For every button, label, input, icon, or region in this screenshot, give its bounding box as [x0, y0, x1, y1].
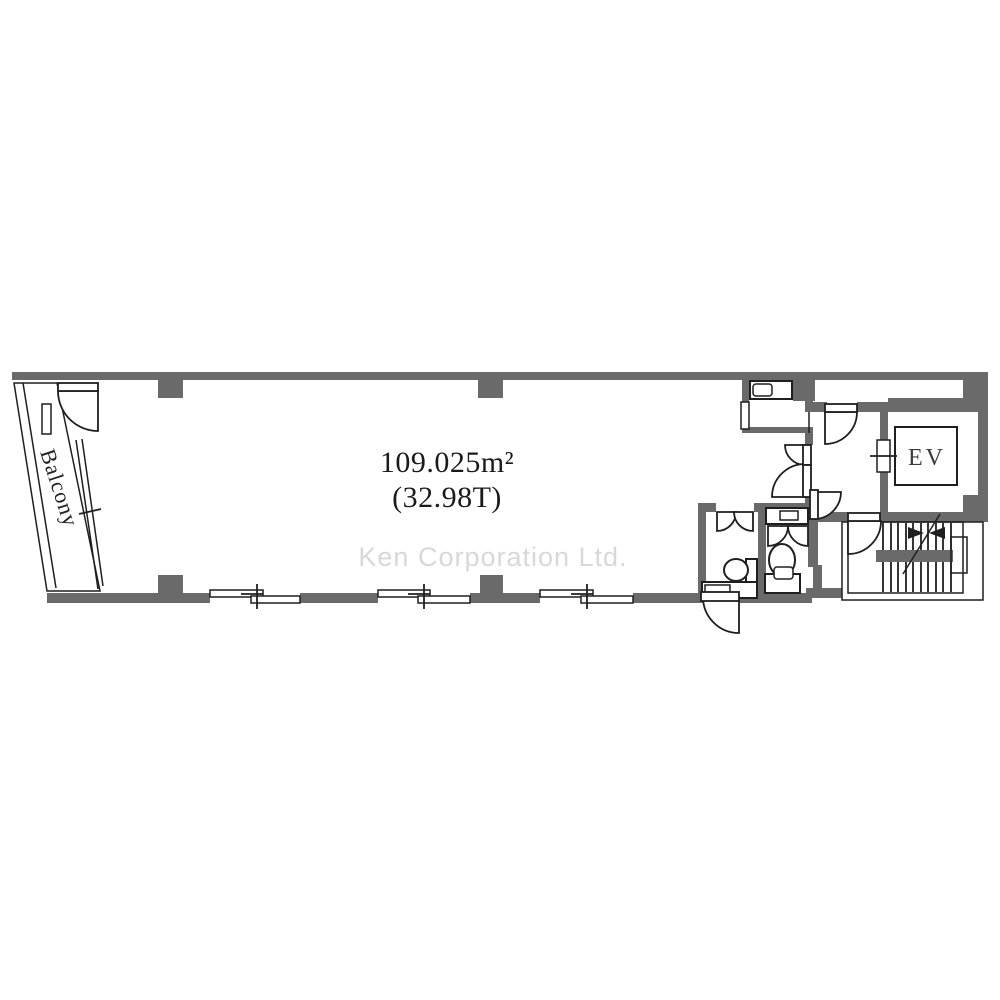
- balcony-pilaster: [42, 404, 51, 434]
- exit-door-panel: [701, 592, 739, 601]
- pillar-bottom-1: [158, 575, 183, 593]
- labels: 109.025m² (32.98T) Ken Corporation Ltd.: [358, 446, 627, 572]
- entry-door-leaf-upper: [803, 445, 811, 465]
- entry-door-swing-lower: [772, 464, 805, 497]
- stair-door-panel: [848, 513, 880, 521]
- top-wall: [12, 372, 963, 380]
- lobby-left-wall-stub: [805, 433, 813, 445]
- alcove-window: [741, 402, 749, 429]
- area-label-m2: 109.025m²: [380, 446, 514, 479]
- staircase: [842, 513, 983, 600]
- wc-left: [702, 512, 757, 598]
- balcony: Balcony: [14, 383, 103, 591]
- lobby-top-wall-right: [857, 402, 888, 412]
- exit-door: [701, 592, 739, 633]
- stair-landing-box: [951, 537, 967, 573]
- bottom-windows: [210, 584, 633, 609]
- balcony-door-panel: [58, 383, 98, 391]
- ev-left-wall-top: [880, 412, 888, 440]
- lobby-lower-door-panel: [810, 490, 818, 519]
- window-3: [540, 584, 633, 609]
- bottom-right-notch: [963, 495, 988, 522]
- exit-door-swing: [703, 597, 739, 633]
- wc-right-door-swing-r: [788, 526, 808, 546]
- wc-left-toilet-bowl: [724, 559, 748, 581]
- stair-door-swing: [848, 521, 881, 554]
- ev-bottom-wall: [880, 512, 963, 522]
- pillar-top-2: [478, 380, 503, 398]
- alcove-bottom-wall: [742, 427, 813, 433]
- window-2: [378, 584, 470, 609]
- floorplan-drawing: Balcony: [0, 0, 1000, 1000]
- wc-right-door-swing-l: [768, 526, 788, 546]
- floorplan-page: Balcony: [0, 0, 1000, 1000]
- area-label-tsubo: (32.98T): [392, 481, 502, 514]
- main-window-tick: [79, 509, 101, 514]
- elevator-label: EV: [908, 445, 946, 471]
- entry-door-swing-upper: [785, 445, 805, 465]
- balcony-door-swing: [58, 391, 98, 431]
- balcony-label: Balcony: [35, 446, 84, 530]
- pillar-bottom-2: [480, 575, 503, 593]
- wc-left-door-swing-l: [717, 512, 736, 531]
- wc-right-toilet-seat: [774, 567, 793, 579]
- lobby-top-door-panel: [825, 404, 857, 412]
- main-entry-doors: [772, 445, 811, 497]
- wc-right-wall: [808, 512, 818, 567]
- ev-left-wall-bottom: [880, 472, 888, 512]
- wc-right: [765, 508, 808, 593]
- ev-top-wall: [888, 398, 980, 412]
- lobby-left-wall-top: [805, 372, 813, 412]
- pillar-top-1: [158, 380, 183, 398]
- wc-left-door-swing-r: [734, 512, 753, 531]
- lobby-top-door-swing: [825, 412, 857, 444]
- elevator-lobby: [810, 404, 857, 519]
- window-1: [210, 584, 300, 609]
- wc-right-sink-basin: [780, 511, 798, 520]
- watermark: Ken Corporation Ltd.: [358, 542, 627, 572]
- slop-sink-basin: [753, 384, 772, 396]
